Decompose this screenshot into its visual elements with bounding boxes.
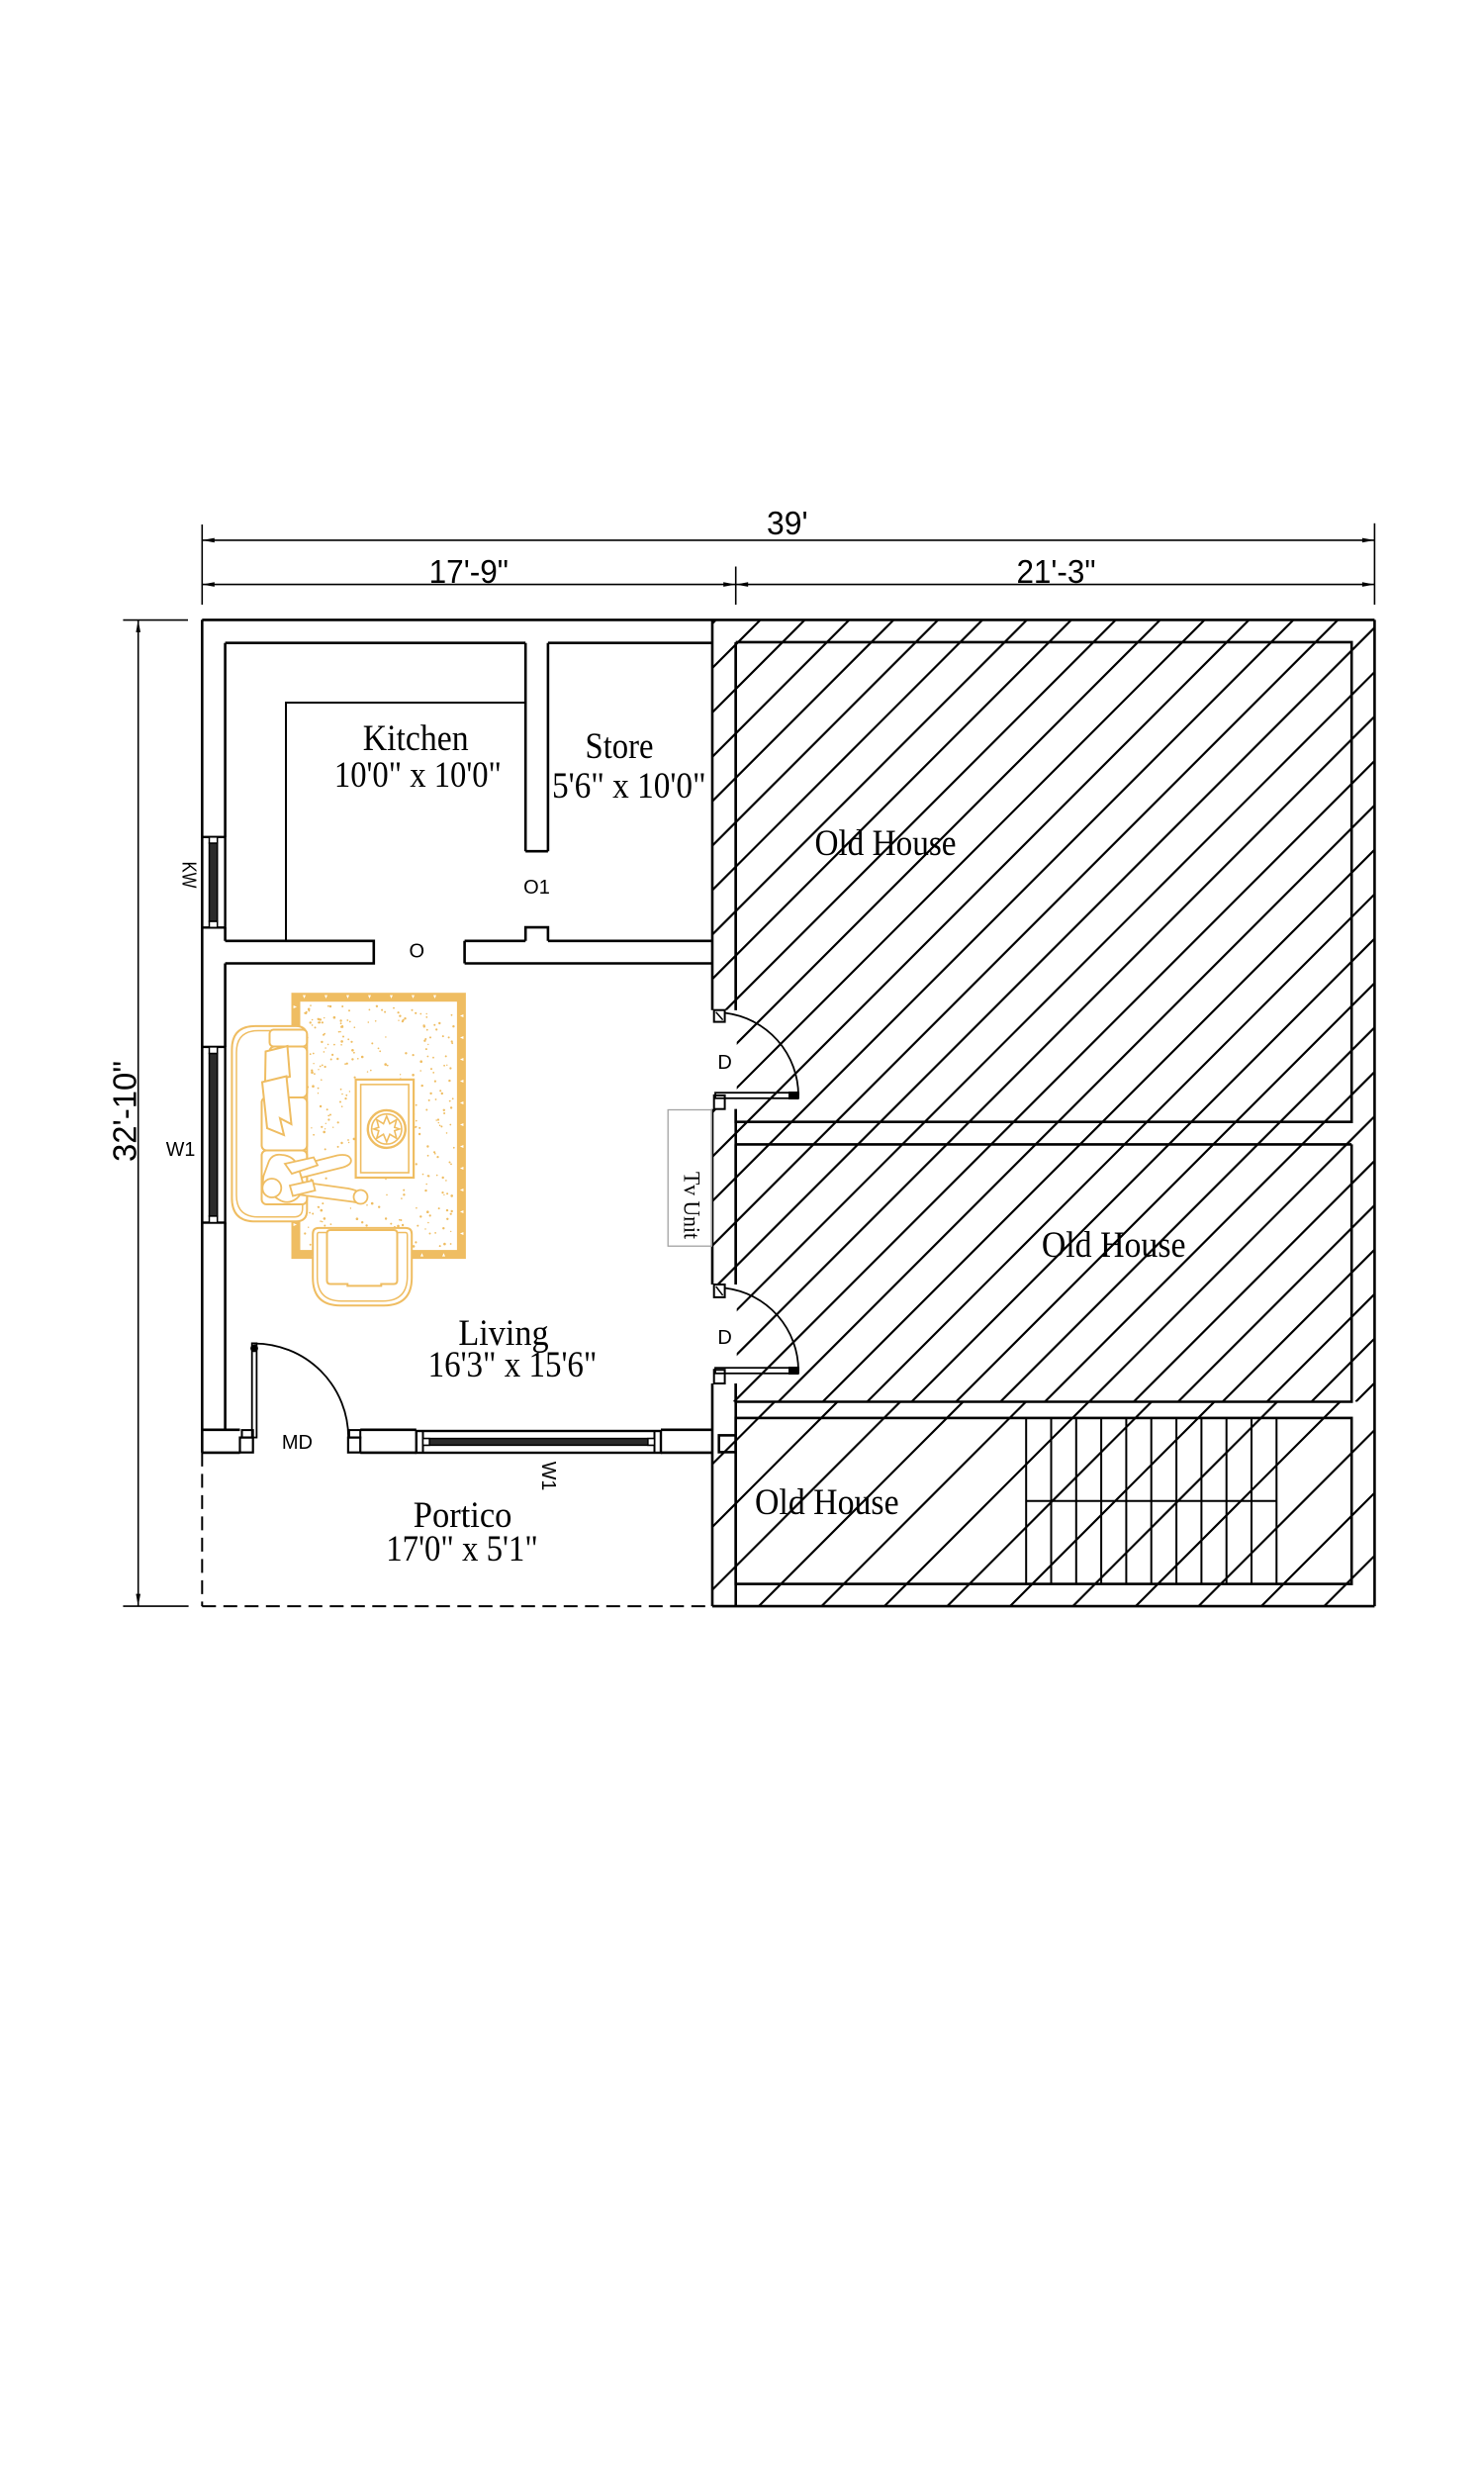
svg-text:10'0" x 10'0": 10'0" x 10'0" [334, 755, 502, 796]
svg-text:Kitchen: Kitchen [363, 718, 469, 759]
svg-text:Old House: Old House [755, 1482, 899, 1523]
svg-text:Old House: Old House [1042, 1225, 1186, 1266]
svg-text:Old House: Old House [814, 823, 956, 864]
svg-text:32'-10": 32'-10" [107, 1061, 143, 1162]
svg-text:O: O [410, 941, 425, 963]
svg-text:O1: O1 [523, 877, 550, 899]
svg-text:Tv Unit: Tv Unit [680, 1172, 704, 1240]
svg-text:5'6" x 10'0": 5'6" x 10'0" [552, 766, 706, 807]
svg-text:39': 39' [767, 505, 808, 541]
svg-text:Store: Store [586, 726, 654, 767]
svg-text:21'-3": 21'-3" [1016, 553, 1095, 590]
svg-text:W1: W1 [166, 1139, 196, 1161]
svg-text:16'3" x 15'6": 16'3" x 15'6" [428, 1345, 598, 1385]
svg-text:D: D [717, 1052, 731, 1074]
svg-text:MD: MD [282, 1432, 313, 1454]
svg-text:17'-9": 17'-9" [429, 553, 509, 590]
svg-text:KW: KW [177, 862, 199, 889]
svg-text:17'0" x 5'1": 17'0" x 5'1" [386, 1529, 538, 1570]
svg-text:W1: W1 [537, 1462, 559, 1491]
svg-text:D: D [717, 1327, 731, 1349]
